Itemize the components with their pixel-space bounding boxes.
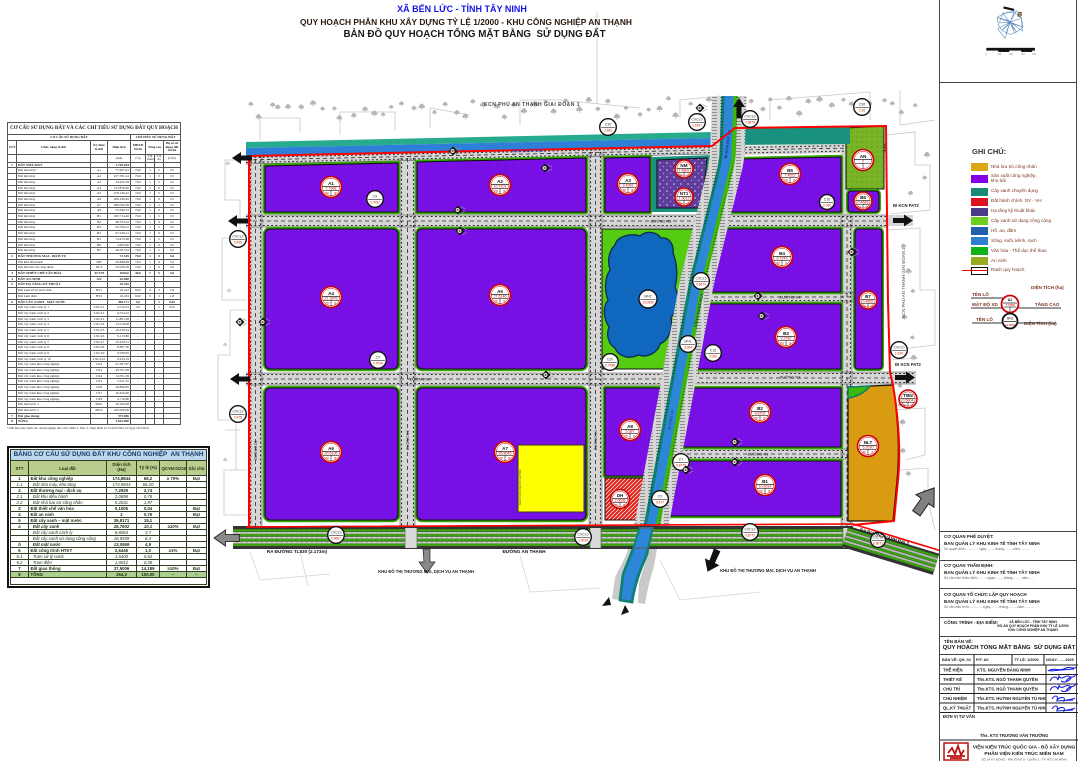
svg-text:KHO CAO 33m S=4.370m²: KHO CAO 33m S=4.370m² [518,469,522,505]
svg-text:AN: AN [860,154,867,159]
svg-text:2: 2 [687,202,689,206]
svg-text:CX: CX [373,194,378,198]
svg-text:70: 70 [494,300,498,304]
svg-text:70: 70 [857,206,861,210]
svg-text:5.2030: 5.2030 [863,446,874,450]
svg-text:TBN: TBN [903,393,913,398]
svg-text:A4: A4 [328,291,334,296]
svg-text:CXCL0: CXCL0 [331,530,342,534]
svg-text:2: 2 [862,160,864,164]
svg-text:70: 70 [776,262,780,266]
svg-text:20.6136: 20.6136 [325,452,338,456]
svg-text:0.7988: 0.7988 [605,363,615,367]
svg-text:NM: NM [680,163,687,168]
svg-text:C15: C15 [710,348,716,352]
svg-text:70: 70 [622,189,626,193]
svg-text:CHỦ NHIỆM: CHỦ NHIỆM [943,696,967,701]
svg-text:26.8045: 26.8045 [499,452,512,456]
svg-text:0.469: 0.469 [234,240,242,244]
svg-text:70: 70 [780,342,784,346]
svg-text:MN1: MN1 [1007,317,1014,321]
svg-text:Ths.KTS. NGÔ THANH QUYỀN: Ths.KTS. NGÔ THANH QUYỀN [977,677,1038,682]
svg-text:A8: A8 [627,424,633,429]
svg-text:CXCL2: CXCL2 [233,409,244,413]
svg-text:ĐI KCN PAT2: ĐI KCN PAT2 [895,362,921,367]
svg-text:3.064: 3.064 [684,345,692,349]
svg-text:40: 40 [902,404,906,408]
svg-text:9: 9 [508,457,510,461]
svg-text:DIỆN TÍCH (ha): DIỆN TÍCH (ha) [1031,283,1064,290]
svg-text:CHỦ TRÌ: CHỦ TRÌ [943,687,960,692]
svg-text:2: 2 [911,404,913,408]
svg-text:kênh Nước Mục: kênh Nước Mục [512,148,545,154]
svg-text:QL.KỸ THUẬT: QL.KỸ THUẬT [943,706,972,711]
svg-text:KCN PHÚ AN THẠNH GIAI ĐOẠN 1: KCN PHÚ AN THẠNH GIAI ĐOẠN 1 [484,101,580,108]
svg-text:70: 70 [494,190,498,194]
svg-text:70: 70 [784,179,788,183]
svg-text:13.0569: 13.0569 [1005,323,1016,327]
svg-text:VIỆN KIẾN TRÚC QUỐC GIA - BỘ X: VIỆN KIẾN TRÚC QUỐC GIA - BỘ XÂY DỰNG [973,743,1076,751]
svg-text:CXCL2: CXCL2 [233,234,244,238]
svg-text:2.060: 2.060 [823,203,831,207]
svg-text:TÊN LÔ: TÊN LÔ [972,290,989,297]
svg-text:2.0698: 2.0698 [615,499,626,503]
svg-text:A7: A7 [502,446,508,451]
svg-text:PIT: A0: PIT: A0 [976,658,989,662]
svg-text:13.0569: 13.0569 [642,300,654,304]
svg-text:A1: A1 [1008,298,1013,302]
svg-text:KTS. NGUYỄN ĐĂNG NINH: KTS. NGUYỄN ĐĂNG NINH [977,668,1031,673]
svg-text:70: 70 [614,504,618,508]
svg-text:CXCL0: CXCL0 [692,117,703,121]
svg-text:200: 200 [1009,54,1014,56]
svg-text:9: 9 [334,192,336,196]
svg-text:NLT: NLT [864,440,873,445]
svg-text:7.7968: 7.7968 [1005,303,1015,307]
svg-text:KHU ĐÔ THỊ THƯƠNG MẠI, DỊCH VỤ: KHU ĐÔ THỊ THƯƠNG MẠI, DỊCH VỤ AN THẠNH [720,568,816,573]
svg-text:9: 9 [768,490,770,494]
svg-text:ĐI KCN PAT2: ĐI KCN PAT2 [893,203,919,208]
svg-text:C20: C20 [607,357,613,361]
svg-text:THỂ HIỆN: THỂ HIỆN [943,668,963,673]
svg-text:9: 9 [789,342,791,346]
svg-text:0.4683: 0.4683 [858,201,869,205]
svg-text:70: 70 [624,435,628,439]
svg-text:B6: B6 [860,195,866,200]
svg-text:Ths.KTS. HUỲNH NGUYỄN TÚ NHI: Ths.KTS. HUỲNH NGUYỄN TÚ NHI [977,706,1045,711]
svg-text:A3: A3 [625,178,631,183]
svg-text:ĐƯỜNG D4: ĐƯỜNG D4 [593,430,598,450]
svg-text:9: 9 [334,302,336,306]
svg-text:7.7968: 7.7968 [326,187,337,191]
svg-text:9.8702: 9.8702 [755,412,766,416]
svg-text:0.362: 0.362 [604,128,612,132]
svg-text:THIẾT KẾ: THIẾT KẾ [943,677,962,682]
svg-text:2.060: 2.060 [709,354,717,358]
svg-text:B3: B3 [783,331,789,336]
svg-text:0.9794: 0.9794 [373,361,383,365]
svg-text:B5: B5 [787,168,793,173]
svg-text:ĐƠN VỊ TƯ VẤN: ĐƠN VỊ TƯ VẤN [943,714,975,719]
svg-text:70: 70 [325,302,329,306]
svg-text:0.8072: 0.8072 [873,541,883,545]
svg-text:1.1807: 1.1807 [692,123,702,127]
svg-text:C30: C30 [859,102,865,106]
svg-text:MN1: MN1 [684,339,691,343]
svg-text:1.6875: 1.6875 [745,120,755,124]
svg-text:CXCL0: CXCL0 [745,114,756,118]
svg-text:B1: B1 [762,479,768,484]
svg-text:RA ĐƯỜNG TL830 (2.173m): RA ĐƯỜNG TL830 (2.173m) [267,547,328,554]
svg-text:5.387: 5.387 [626,430,635,434]
svg-text:9: 9 [503,300,505,304]
svg-text:DH: DH [617,493,624,498]
svg-text:1.96: 1.96 [859,108,865,112]
svg-text:40: 40 [862,451,866,455]
svg-text:10.7101: 10.7101 [494,185,507,189]
svg-text:70: 70 [759,490,763,494]
svg-text:27.6146: 27.6146 [494,295,507,299]
svg-text:SỐ 14 KỲ ĐỒNG - PHƯỜNG 9 - QUẬ: SỐ 14 KỲ ĐỒNG - PHƯỜNG 9 - QUẬN 3 - TP. … [981,757,1066,761]
svg-text:0.5004: 0.5004 [903,399,914,403]
svg-text:Ths. KTS TRƯƠNG VĂN TRƯỜNG: Ths. KTS TRƯƠNG VĂN TRƯỜNG [980,733,1048,738]
svg-text:0.475: 0.475 [234,415,242,419]
svg-text:9: 9 [793,179,795,183]
svg-text:9: 9 [871,305,873,309]
svg-text:9: 9 [633,435,635,439]
svg-text:1.0029: 1.0029 [578,538,588,542]
svg-text:ĐƯỜNG N4: ĐƯỜNG N4 [780,295,801,300]
svg-text:2: 2 [687,174,689,178]
svg-text:CXCL0: CXCL0 [894,345,905,349]
svg-text:400: 400 [1032,54,1037,56]
svg-text:0.6674: 0.6674 [696,282,706,286]
svg-text:MN2: MN2 [644,294,651,298]
svg-text:NGÀY: ......2025: NGÀY: ......2025 [1046,657,1074,662]
svg-text:0.9687: 0.9687 [331,536,341,540]
svg-text:B7: B7 [865,294,871,299]
svg-text:9: 9 [334,457,336,461]
svg-text:BẢN VẼ: QH. 04: BẢN VẼ: QH. 04 [942,657,972,662]
svg-text:10.0014: 10.0014 [759,485,772,489]
svg-text:0.4852: 0.4852 [863,300,874,304]
svg-text:A1: A1 [328,181,334,186]
svg-text:1.620: 1.620 [895,351,903,355]
svg-text:2: 2 [871,451,873,455]
svg-text:70: 70 [325,192,329,196]
svg-text:CXCL0: CXCL0 [745,527,756,531]
svg-text:3.4952: 3.4952 [623,184,634,188]
svg-text:9: 9 [631,189,633,193]
svg-text:MẬT ĐỘ XD: MẬT ĐỘ XD [972,300,998,307]
svg-text:C16: C16 [824,197,830,201]
svg-text:0.8772: 0.8772 [745,533,755,537]
svg-text:70: 70 [325,457,329,461]
svg-text:ĐƯỜNG N5: ĐƯỜNG N5 [651,219,672,224]
svg-text:ĐƯỜNG N1: ĐƯỜNG N1 [748,452,769,457]
svg-text:9: 9 [866,206,868,210]
svg-text:7.4802: 7.4802 [679,169,690,173]
svg-text:9: 9 [785,262,787,266]
svg-text:CX: CX [658,494,663,498]
svg-text:70: 70 [754,417,758,421]
svg-text:TẦNG CAO: TẦNG CAO [1035,301,1060,307]
svg-text:300: 300 [1021,54,1026,56]
svg-text:9: 9 [623,504,625,508]
svg-text:1.0012: 1.0012 [679,197,690,201]
svg-text:ĐƯỜNG N3: ĐƯỜNG N3 [780,375,801,380]
svg-text:70: 70 [862,305,866,309]
svg-text:TỶ LỆ: 1/2000: TỶ LỆ: 1/2000 [1014,657,1039,662]
svg-text:A5: A5 [497,289,503,294]
svg-text:40: 40 [678,174,682,178]
svg-text:1.0787: 1.0787 [370,200,380,204]
svg-text:C7: C7 [679,457,683,461]
svg-text:7.4522: 7.4522 [785,174,796,178]
svg-text:9: 9 [763,417,765,421]
svg-text:9: 9 [503,190,505,194]
svg-text:ĐƯỜNG N2: ĐƯỜNG N2 [410,377,431,382]
svg-text:NT1: NT1 [680,191,689,196]
svg-text:9.2782: 9.2782 [781,337,792,341]
svg-text:21.3876: 21.3876 [325,297,338,301]
svg-text:TÊN LÔ: TÊN LÔ [976,315,993,322]
svg-text:KCN PHÚ AN THẠNH GIAI ĐOẠN 2: KCN PHÚ AN THẠNH GIAI ĐOẠN 2 [901,247,906,318]
svg-text:A2: A2 [497,179,503,184]
svg-text:KHU ĐÔ THỊ THƯƠNG MẠI, DỊCH VỤ: KHU ĐÔ THỊ THƯƠNG MẠI, DỊCH VỤ AN THẠNH [378,569,474,574]
svg-text:CXCL5: CXCL5 [696,276,707,280]
svg-text:CX: CX [376,355,381,359]
svg-text:ĐƯỜNG AN THẠNH: ĐƯỜNG AN THẠNH [502,547,546,554]
svg-text:70: 70 [499,457,503,461]
svg-text:100: 100 [997,54,1002,56]
svg-text:CXCL0: CXCL0 [578,532,589,536]
svg-text:40: 40 [678,202,682,206]
svg-text:ĐƯỜNG D2: ĐƯỜNG D2 [405,430,410,450]
svg-text:0.8778: 0.8778 [676,463,686,467]
svg-text:Ths.KTS. NGÔ THANH QUYỀN: Ths.KTS. NGÔ THANH QUYỀN [977,687,1038,692]
svg-text:A6: A6 [328,446,334,451]
svg-text:6.7243: 6.7243 [777,257,788,261]
svg-text:B: B [1017,11,1022,18]
svg-text:ĐƯỜNG D1: ĐƯỜNG D1 [253,440,258,460]
svg-text:Ths.KTS. HUỲNH NGUYỄN TÚ NHI: Ths.KTS. HUỲNH NGUYỄN TÚ NHI [977,696,1045,701]
svg-text:0.477: 0.477 [656,500,664,504]
svg-text:0: 0 [985,54,987,56]
svg-text:B2: B2 [757,406,763,411]
svg-text:C30: C30 [605,122,611,126]
svg-text:B4: B4 [779,251,785,256]
